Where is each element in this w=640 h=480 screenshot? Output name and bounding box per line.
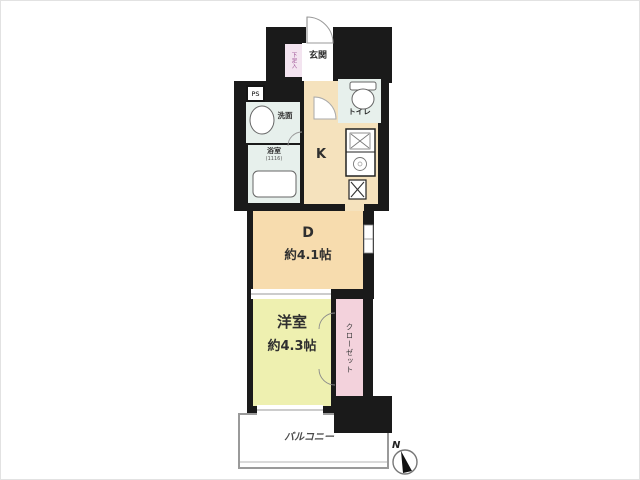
- dining-label: D: [253, 226, 363, 241]
- floor-plan: 下足入 PS クローゼット 玄関 洗面 トイレ 浴室 (1116) K D 約4…: [0, 0, 640, 480]
- wall-top-right: [333, 27, 392, 83]
- pipe-space: PS: [246, 85, 265, 102]
- balcony-label: バルコニー: [249, 432, 369, 443]
- bathroom-label: 浴室: [248, 148, 300, 156]
- entrance-hall: [302, 43, 333, 81]
- pipe-space-label: PS: [251, 90, 259, 98]
- entrance-label: 玄関: [300, 52, 336, 62]
- compass-north-label: N: [392, 440, 401, 451]
- wall-balcony-block: [334, 396, 392, 433]
- western-room-size-label: 約4.3帖: [253, 340, 331, 354]
- entrance-door-arc-icon: [307, 17, 333, 43]
- toilet-room: [338, 79, 381, 123]
- compass-icon: N: [392, 440, 417, 474]
- dining-size-label: 約4.1帖: [253, 248, 363, 262]
- washroom-label: 洗面: [269, 112, 301, 120]
- closet-label: クローゼット: [344, 323, 355, 374]
- shoe-storage-label: 下足入: [290, 52, 298, 69]
- washroom: [246, 102, 300, 143]
- closet: クローゼット: [336, 299, 363, 398]
- western-room-label: 洋室: [253, 314, 331, 331]
- toilet-label: トイレ: [338, 108, 381, 116]
- bathroom-size-label: (1116): [248, 157, 300, 163]
- kitchen-label: K: [309, 148, 333, 162]
- kitchen-dining-opening: [345, 202, 364, 211]
